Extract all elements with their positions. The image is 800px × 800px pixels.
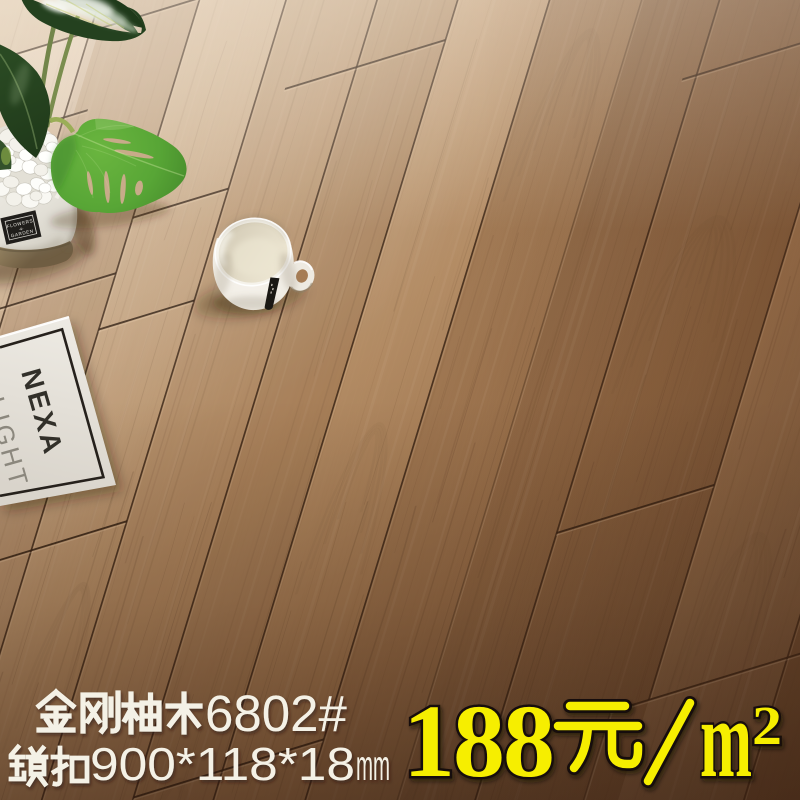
svg-text:2: 2 [752,695,782,756]
svg-text:mm: mm [356,742,390,790]
svg-text:900*118*18: 900*118*18 [90,738,355,790]
svg-text:188: 188 [403,684,553,799]
svg-text:m: m [700,678,752,800]
svg-text:6802#: 6802# [205,685,347,742]
